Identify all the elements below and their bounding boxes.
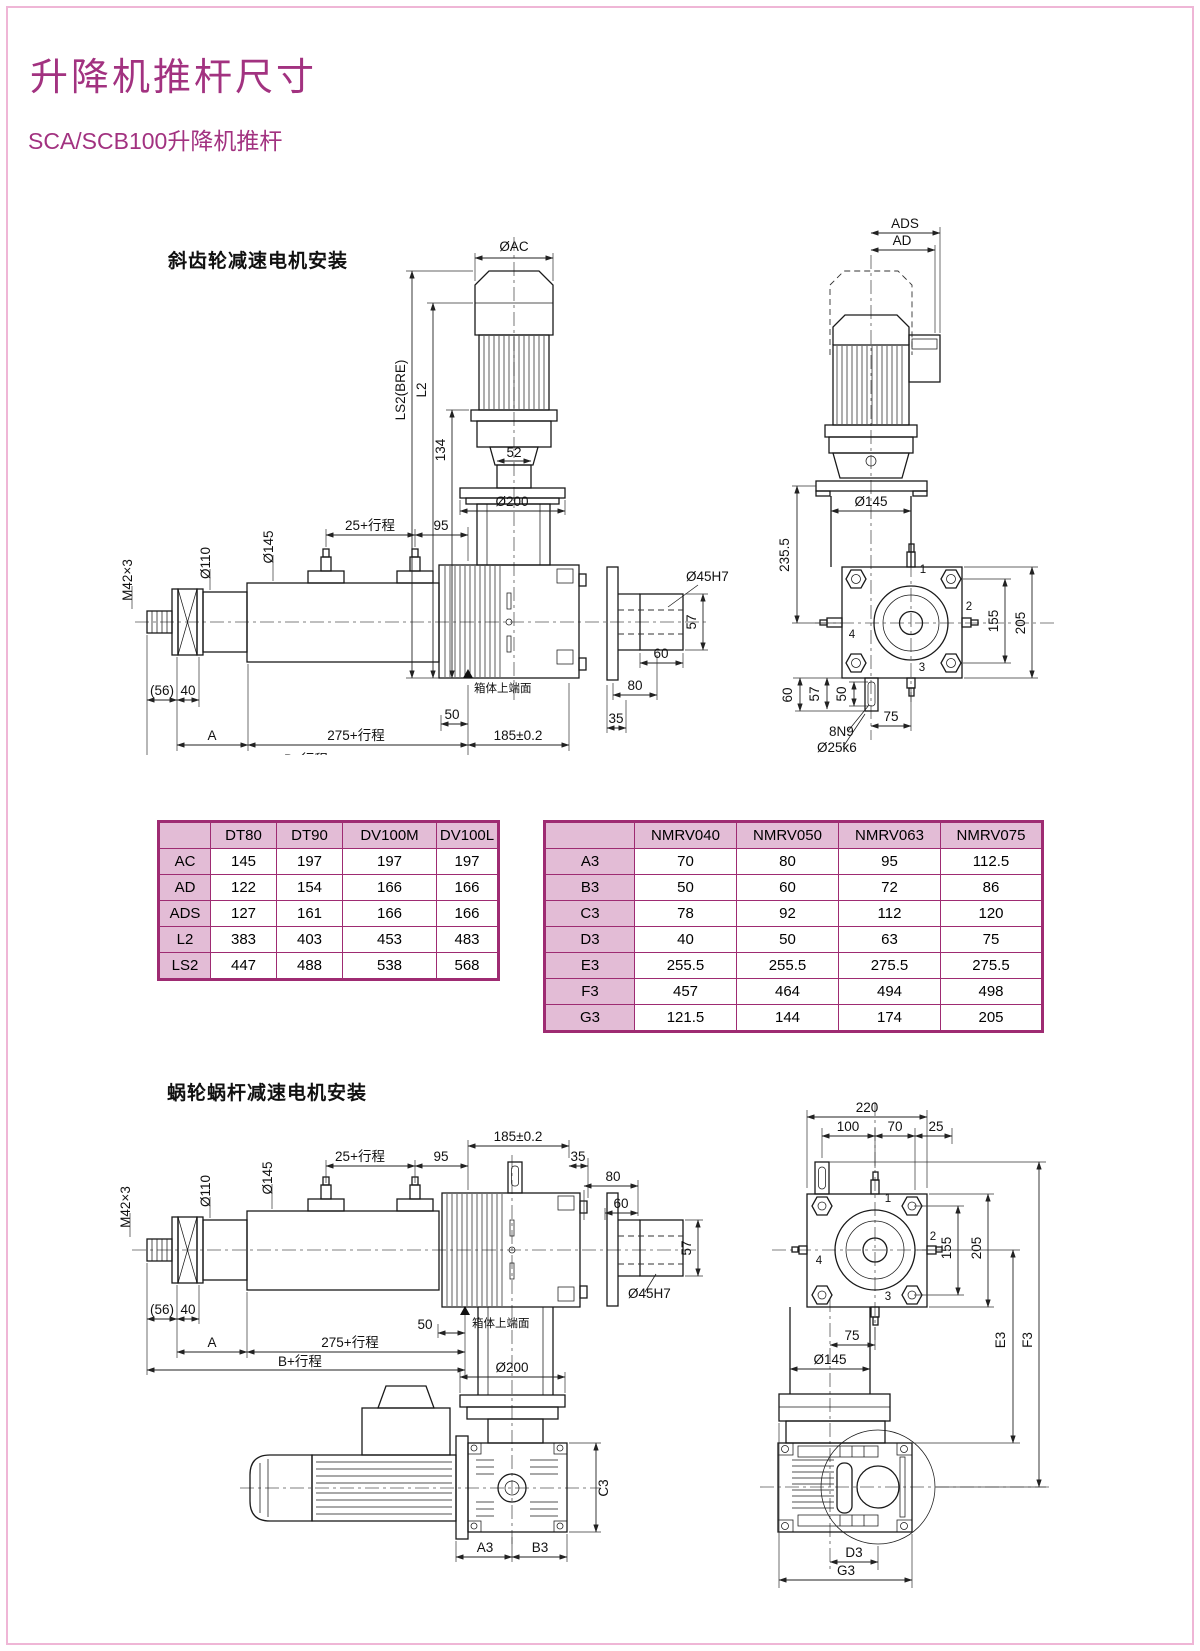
dim-label: 75 <box>883 709 898 724</box>
table-cell: 197 <box>437 849 499 875</box>
catalog-page: { "page": { "title": "升降机推杆尺寸", "subtitl… <box>0 0 1200 1651</box>
table-cell: 464 <box>737 979 839 1005</box>
dim-label: 80 <box>605 1169 620 1184</box>
table-cell: 197 <box>277 849 343 875</box>
table-cell: 127 <box>211 901 277 927</box>
dim-label: 60 <box>613 1196 628 1211</box>
table-cell: 144 <box>737 1005 839 1032</box>
dim-label: A <box>207 728 216 743</box>
table-cell: 72 <box>839 875 941 901</box>
grease-point-label: 2 <box>930 1231 936 1243</box>
table-row: B350607286 <box>545 875 1043 901</box>
table-cell: 95 <box>839 849 941 875</box>
table-cell: 122 <box>211 875 277 901</box>
table-cell: 70 <box>635 849 737 875</box>
table-cell: 494 <box>839 979 941 1005</box>
dim-label: 75 <box>844 1328 859 1343</box>
gearbox-plate-outline <box>820 544 978 711</box>
table-cell: 80 <box>737 849 839 875</box>
grease-point-label: 2 <box>966 601 972 613</box>
table-cell: 154 <box>277 875 343 901</box>
table-cell: 568 <box>437 953 499 980</box>
gearbox-dimension-table: NMRV040NMRV050NMRV063NMRV075A3708095112.… <box>543 820 1044 1033</box>
dim-label: 40 <box>180 1302 195 1317</box>
table-cell: 166 <box>343 901 437 927</box>
dim-label: C3 <box>596 1479 611 1496</box>
grease-point-label: 3 <box>885 1291 891 1303</box>
table-cell: 92 <box>737 901 839 927</box>
table-row: LS2447488538568 <box>159 953 499 980</box>
row-label: LS2 <box>159 953 211 980</box>
dim-label: M42×3 <box>118 1186 133 1228</box>
motor-dimension-table: DT80DT90DV100MDV100LAC145197197197AD1221… <box>157 820 500 981</box>
dim-label: Ø145 <box>813 1352 846 1367</box>
table-row: AC145197197197 <box>159 849 499 875</box>
dim-label: 275+行程 <box>327 728 384 743</box>
column-header <box>159 822 211 849</box>
table-row: ADS127161166166 <box>159 901 499 927</box>
dim-label: (56) <box>150 683 174 698</box>
dim-label: Ø25k6 <box>817 740 857 755</box>
dim-label: 70 <box>887 1119 902 1134</box>
dim-label: 155 <box>986 610 1001 633</box>
actuator-outline <box>147 549 683 680</box>
dim-label: Ø200 <box>495 1360 528 1375</box>
row-label: D3 <box>545 927 635 953</box>
table-cell: 403 <box>277 927 343 953</box>
grease-point-label: 1 <box>885 1193 891 1205</box>
column-header: DT80 <box>211 822 277 849</box>
gearmotor-outline <box>460 271 565 565</box>
table-cell: 205 <box>941 1005 1043 1032</box>
dim-label: B3 <box>532 1540 549 1555</box>
dim-label: 52 <box>506 445 521 460</box>
table-row: E3255.5255.5275.5275.5 <box>545 953 1043 979</box>
table-cell: 60 <box>737 875 839 901</box>
table-cell: 166 <box>343 875 437 901</box>
dim-label: 95 <box>433 518 448 533</box>
table-cell: 498 <box>941 979 1043 1005</box>
table-cell: 383 <box>211 927 277 953</box>
dim-label: 35 <box>608 711 623 726</box>
dim-label: 57 <box>807 686 822 701</box>
dim-label: Ø145 <box>261 530 276 563</box>
actuator-outline <box>147 1162 683 1443</box>
table-cell: 75 <box>941 927 1043 953</box>
table-cell: 488 <box>277 953 343 980</box>
dim-label: 箱体上端面 <box>472 1316 530 1330</box>
dimensions: ØAC LS2(BRE) L2 134 52 Ø200 25+行程 95 Ø14… <box>120 239 729 755</box>
dim-label: 205 <box>1013 612 1028 635</box>
table-cell: 275.5 <box>839 953 941 979</box>
table-row: A3708095112.5 <box>545 849 1043 875</box>
dim-label: LS2(BRE) <box>393 360 408 421</box>
column-header: DV100L <box>437 822 499 849</box>
table-row: D340506375 <box>545 927 1043 953</box>
row-label: ADS <box>159 901 211 927</box>
table-cell: 447 <box>211 953 277 980</box>
dim-label: Ø200 <box>495 494 528 509</box>
table-cell: 121.5 <box>635 1005 737 1032</box>
dim-label: 50 <box>444 707 459 722</box>
dim-label: 275+行程 <box>321 1335 378 1350</box>
dim-label: 50 <box>417 1317 432 1332</box>
table-row: G3121.5144174205 <box>545 1005 1043 1032</box>
table-cell: 112 <box>839 901 941 927</box>
table-cell: 174 <box>839 1005 941 1032</box>
grease-point-label: 4 <box>816 1255 823 1267</box>
dim-label: 205 <box>969 1237 984 1260</box>
grease-point-label: 1 <box>920 564 926 576</box>
row-label: C3 <box>545 901 635 927</box>
dim-label: 134 <box>433 438 448 461</box>
dim-label: 80 <box>627 678 642 693</box>
dim-label: E3 <box>993 1332 1008 1349</box>
helical-end-drawing: 1 2 3 4 ADS AD Ø145 235.5 155 205 60 57 … <box>745 195 1115 755</box>
table-cell: 50 <box>635 875 737 901</box>
worm-side-drawing: 25+行程 95 185±0.2 35 80 60 Ø110 Ø145 M42×… <box>100 1100 720 1650</box>
dim-label: AD <box>893 233 912 248</box>
table-cell: 275.5 <box>941 953 1043 979</box>
dim-label: 25 <box>928 1119 943 1134</box>
dim-label: A <box>207 1335 216 1350</box>
dim-label: Ø110 <box>198 547 213 579</box>
table-cell: 78 <box>635 901 737 927</box>
column-header <box>545 822 635 849</box>
dim-label: 95 <box>433 1149 448 1164</box>
table-row: L2383403453483 <box>159 927 499 953</box>
gearbox-plate-outline <box>792 1162 942 1325</box>
dim-label: G3 <box>837 1563 855 1578</box>
table-cell: 453 <box>343 927 437 953</box>
dim-label: Ø45H7 <box>686 569 729 584</box>
dim-label: Ø145 <box>854 494 887 509</box>
gearmotor-outline <box>816 271 940 567</box>
dim-label: 235.5 <box>777 538 792 572</box>
table-cell: 255.5 <box>635 953 737 979</box>
row-label: B3 <box>545 875 635 901</box>
row-label: E3 <box>545 953 635 979</box>
worm-gearbox-outline <box>250 1386 567 1539</box>
dim-label: 185±0.2 <box>494 1129 543 1144</box>
dim-label: 35 <box>570 1149 585 1164</box>
row-label: G3 <box>545 1005 635 1032</box>
table-cell: 112.5 <box>941 849 1043 875</box>
table-row: F3457464494498 <box>545 979 1043 1005</box>
table-cell: 145 <box>211 849 277 875</box>
table-cell: 197 <box>343 849 437 875</box>
row-label: AD <box>159 875 211 901</box>
grease-point-label: 3 <box>919 662 925 674</box>
row-label: A3 <box>545 849 635 875</box>
dim-label: ADS <box>891 216 919 231</box>
dim-label: 50 <box>834 686 849 701</box>
table-cell: 161 <box>277 901 343 927</box>
dim-label: 155 <box>939 1237 954 1260</box>
helical-side-drawing: ØAC LS2(BRE) L2 134 52 Ø200 25+行程 95 Ø14… <box>110 195 750 755</box>
dim-label: 185±0.2 <box>494 728 543 743</box>
grease-point-label: 4 <box>849 629 856 641</box>
dim-label: 25+行程 <box>335 1149 385 1164</box>
dim-label: Ø145 <box>260 1161 275 1194</box>
table-cell: 457 <box>635 979 737 1005</box>
dim-label: M42×3 <box>120 559 135 601</box>
dim-label: (56) <box>150 1302 174 1317</box>
table-cell: 40 <box>635 927 737 953</box>
row-label: AC <box>159 849 211 875</box>
dim-label: 40 <box>180 683 195 698</box>
dim-label: F3 <box>1020 1332 1035 1348</box>
column-header: NMRV040 <box>635 822 737 849</box>
column-header: NMRV050 <box>737 822 839 849</box>
table-cell: 255.5 <box>737 953 839 979</box>
dim-label: 60 <box>780 687 795 702</box>
page-title: 升降机推杆尺寸 <box>30 46 317 101</box>
dim-label: B+行程 <box>278 1354 322 1369</box>
table-cell: 166 <box>437 875 499 901</box>
worm-end-drawing: 1 2 3 4 220 100 70 25 155 205 E3 F3 75 Ø… <box>700 1040 1100 1651</box>
dim-label: ØAC <box>499 239 529 254</box>
dim-label: 100 <box>837 1119 860 1134</box>
dim-label: 220 <box>856 1100 879 1115</box>
table-cell: 86 <box>941 875 1043 901</box>
dim-label: 25+行程 <box>345 518 395 533</box>
table-cell: 483 <box>437 927 499 953</box>
column-header: DT90 <box>277 822 343 849</box>
column-header: NMRV063 <box>839 822 941 849</box>
dim-label: 57 <box>684 614 699 629</box>
column-header: DV100M <box>343 822 437 849</box>
page-subtitle: SCA/SCB100升降机推杆 <box>28 122 282 156</box>
table-row: AD122154166166 <box>159 875 499 901</box>
table-cell: 120 <box>941 901 1043 927</box>
table-row: C37892112120 <box>545 901 1043 927</box>
table-cell: 538 <box>343 953 437 980</box>
row-label: F3 <box>545 979 635 1005</box>
dim-label: Ø45H7 <box>628 1286 671 1301</box>
row-label: L2 <box>159 927 211 953</box>
dim-label: D3 <box>845 1545 862 1560</box>
dim-label: 60 <box>653 646 668 661</box>
column-header: NMRV075 <box>941 822 1043 849</box>
dim-label: 箱体上端面 <box>474 681 532 695</box>
dim-label: Ø110 <box>198 1175 213 1207</box>
dim-label: 57 <box>679 1240 694 1255</box>
table-cell: 50 <box>737 927 839 953</box>
dim-label: L2 <box>414 382 429 397</box>
table-cell: 166 <box>437 901 499 927</box>
dim-label: B+行程 <box>284 752 328 755</box>
dim-label: A3 <box>477 1540 494 1555</box>
table-cell: 63 <box>839 927 941 953</box>
